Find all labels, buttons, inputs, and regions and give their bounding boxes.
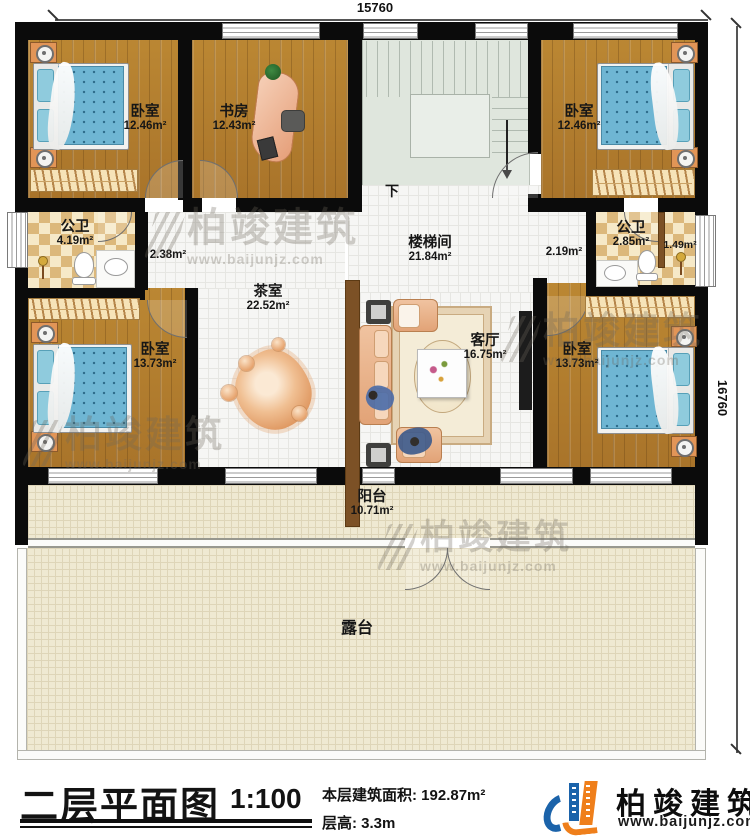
wall — [348, 38, 362, 212]
room-terrace-floor — [27, 548, 695, 750]
floor-height-value: 3.3m — [361, 815, 395, 832]
p — [636, 273, 658, 281]
room-label-bedroom-br: 卧室13.73m² — [537, 342, 617, 371]
stair-treads-right — [492, 97, 528, 157]
window — [500, 468, 573, 484]
shower-head — [38, 256, 48, 266]
area-label-hall-left: 2.38m² — [138, 249, 198, 261]
plant — [265, 64, 281, 80]
ar: 22.52m² — [228, 300, 308, 313]
nm: 阳台 — [332, 489, 412, 505]
p — [367, 390, 378, 401]
nm: 公卫 — [40, 219, 110, 235]
balcony-railing — [490, 538, 695, 548]
wall — [528, 38, 541, 154]
tea-stool — [272, 338, 285, 351]
nm: 楼梯间 — [390, 235, 470, 251]
p — [680, 262, 682, 275]
window — [573, 23, 678, 39]
stair-treads-upper — [366, 41, 526, 97]
wall — [236, 198, 348, 212]
sink — [104, 258, 128, 276]
window — [695, 215, 716, 287]
wall — [183, 198, 202, 212]
ar: 16.75m² — [445, 349, 525, 362]
nightstand — [31, 431, 58, 452]
room-label-bedroom-tr: 卧室12.46m² — [539, 104, 619, 133]
nm: 公卫 — [598, 220, 664, 236]
window — [48, 468, 158, 484]
terrace-parapet-right — [695, 548, 706, 760]
title-underline — [20, 819, 312, 823]
dimension-line-right — [736, 26, 738, 753]
p — [409, 436, 420, 447]
wardrobe — [585, 296, 695, 318]
nm: 卧室 — [539, 104, 619, 120]
room-label-tea: 茶室22.52m² — [228, 284, 308, 313]
terrace-parapet-left — [17, 548, 27, 760]
p — [20, 826, 312, 828]
room-label-bedroom-bl: 卧室13.73m² — [115, 342, 195, 371]
room-label-bath-left: 公卫4.19m² — [40, 219, 110, 248]
floor-area-value: 192.87m² — [421, 787, 485, 804]
toilet — [638, 250, 656, 274]
p — [572, 787, 576, 817]
toilet — [74, 252, 94, 278]
floor-area-line: 本层建筑面积: 192.87m² — [322, 784, 485, 805]
element: 本层建筑面积: — [322, 787, 417, 804]
ar: 12.46m² — [105, 120, 185, 133]
side-table — [366, 443, 391, 467]
nm: 客厅 — [445, 333, 525, 349]
wardrobe — [592, 169, 695, 196]
room-label-stairwell: 楼梯间21.84m² — [390, 235, 470, 264]
nm: 书房 — [194, 104, 274, 120]
stairs-down-label: 下 — [380, 181, 404, 201]
window — [222, 23, 320, 39]
dimension-right: 16760 — [712, 358, 730, 438]
wall — [541, 198, 624, 212]
shower-head — [676, 252, 686, 262]
cu — [398, 304, 420, 328]
ar: 10.71m² — [332, 505, 412, 518]
ar: 12.43m² — [194, 120, 274, 133]
ar: 21.84m² — [390, 251, 470, 264]
brand-url: www.baijunjz.com — [618, 814, 750, 830]
sofa — [359, 325, 392, 425]
window — [362, 468, 395, 484]
nightstand — [30, 147, 57, 168]
armchair — [393, 299, 438, 332]
nightstand — [671, 147, 698, 168]
nightstand — [671, 326, 697, 347]
side-table — [366, 300, 391, 324]
wall — [15, 198, 145, 212]
sink — [604, 265, 626, 281]
room-label-study: 书房12.43m² — [194, 104, 274, 133]
nm: 茶室 — [228, 284, 308, 300]
nightstand — [31, 322, 58, 343]
tick — [47, 9, 58, 20]
ar: 13.73m² — [115, 358, 195, 371]
ar: 12.46m² — [539, 120, 619, 133]
stair-landing — [410, 94, 490, 158]
nm: 卧室 — [105, 104, 185, 120]
office-chair — [281, 110, 305, 132]
brand-logo-icon — [545, 781, 613, 837]
element: 层高: — [322, 815, 357, 832]
floor-height-line: 层高: 3.3m — [322, 812, 395, 833]
p — [42, 266, 44, 279]
dimension-top: 15760 — [295, 0, 455, 15]
wardrobe — [30, 169, 138, 192]
room-label-balcony: 阳台10.71m² — [332, 489, 412, 518]
room-label-bedroom-tl: 卧室12.46m² — [105, 104, 185, 133]
ar: 4.19m² — [40, 235, 110, 248]
wardrobe — [28, 298, 140, 320]
room-label-terrace: 露台 — [317, 620, 397, 638]
tea-stool — [221, 385, 237, 401]
wall — [533, 278, 547, 468]
window — [7, 212, 28, 268]
area-label-hall-right: 2.19m² — [534, 246, 594, 258]
nightstand — [30, 42, 57, 63]
plan-scale: 1:100 — [230, 783, 302, 815]
tea-stool — [292, 406, 307, 421]
wall — [658, 198, 708, 212]
cu — [374, 330, 389, 358]
floor-plan-page: 15760 16760 — [0, 0, 750, 839]
window — [590, 468, 672, 484]
dimension-line-top — [55, 19, 708, 21]
p — [562, 819, 597, 836]
window — [363, 23, 418, 39]
nm: 卧室 — [115, 342, 195, 358]
room-label-living: 客厅16.75m² — [445, 333, 525, 362]
nm: 露台 — [317, 620, 397, 638]
balcony-railing — [28, 538, 405, 548]
ar: 13.73m² — [537, 358, 617, 371]
nm: 卧室 — [537, 342, 617, 358]
nightstand — [671, 42, 698, 63]
nightstand — [671, 436, 697, 457]
window — [475, 23, 528, 39]
p — [72, 277, 96, 285]
window — [225, 468, 317, 484]
terrace-parapet-bottom — [17, 750, 706, 760]
tea-stool — [239, 356, 254, 371]
p — [586, 785, 590, 819]
area-label-shower: 1.49m² — [654, 239, 706, 251]
